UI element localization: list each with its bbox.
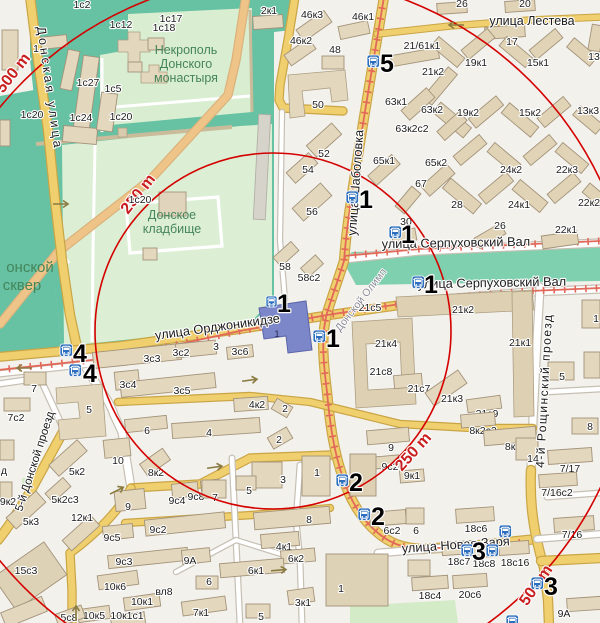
- svg-text:сквер: сквер: [3, 277, 42, 294]
- svg-text:улица Лестева: улица Лестева: [489, 14, 574, 28]
- svg-text:20: 20: [519, 0, 531, 10]
- svg-text:3с6: 3с6: [232, 346, 249, 358]
- svg-text:4: 4: [83, 360, 97, 388]
- svg-text:3с4: 3с4: [120, 379, 137, 391]
- svg-text:48: 48: [329, 44, 341, 56]
- svg-text:46к3: 46к3: [301, 9, 323, 21]
- svg-text:15с3: 15с3: [15, 565, 38, 577]
- svg-text:3с2: 3с2: [173, 347, 190, 359]
- svg-text:15к1: 15к1: [527, 57, 549, 69]
- svg-text:19к1: 19к1: [465, 57, 487, 69]
- svg-text:1с20: 1с20: [110, 111, 133, 123]
- svg-text:3: 3: [213, 341, 219, 353]
- svg-text:1с2: 1с2: [74, 0, 91, 11]
- svg-text:улица Серпуховский Вал: улица Серпуховский Вал: [418, 274, 567, 292]
- svg-text:24к1: 24к1: [508, 199, 530, 211]
- svg-text:46к2: 46к2: [290, 35, 312, 47]
- svg-text:10к6: 10к6: [104, 581, 126, 593]
- svg-text:6: 6: [413, 525, 419, 537]
- svg-text:1с5: 1с5: [105, 83, 122, 95]
- svg-text:Некрополь: Некрополь: [155, 43, 218, 57]
- svg-text:2: 2: [371, 503, 385, 531]
- svg-text:1: 1: [401, 221, 415, 249]
- svg-text:18с16: 18с16: [501, 557, 530, 569]
- svg-text:1с27: 1с27: [77, 77, 100, 89]
- svg-text:63к1: 63к1: [385, 96, 407, 108]
- svg-text:12к1: 12к1: [71, 512, 93, 524]
- svg-text:22к1: 22к1: [555, 224, 577, 236]
- svg-text:7с2: 7с2: [8, 412, 25, 424]
- svg-text:65к2: 65к2: [425, 157, 447, 169]
- svg-text:1с24: 1с24: [70, 112, 93, 124]
- svg-text:1: 1: [326, 325, 340, 353]
- svg-text:д: д: [1, 465, 7, 477]
- svg-text:онской: онской: [6, 259, 54, 276]
- svg-text:3с3: 3с3: [144, 353, 161, 365]
- svg-text:24к2: 24к2: [500, 164, 522, 176]
- svg-text:10: 10: [112, 455, 124, 467]
- svg-text:13к3: 13к3: [577, 105, 599, 117]
- svg-text:вл8: вл8: [155, 586, 172, 598]
- svg-text:21к3: 21к3: [441, 393, 463, 405]
- svg-text:52: 52: [318, 148, 330, 160]
- svg-text:63к2: 63к2: [421, 104, 443, 116]
- svg-text:6к1: 6к1: [248, 565, 264, 577]
- svg-text:13: 13: [588, 51, 600, 63]
- svg-text:7/16с2: 7/16с2: [541, 487, 573, 499]
- svg-text:1с12: 1с12: [110, 19, 133, 31]
- svg-text:21к2: 21к2: [422, 66, 444, 78]
- svg-text:58: 58: [279, 261, 291, 273]
- svg-text:4: 4: [206, 427, 212, 439]
- svg-text:9А: 9А: [558, 608, 571, 620]
- svg-text:6к2: 6к2: [288, 553, 304, 565]
- svg-text:7/16: 7/16: [562, 529, 583, 541]
- svg-text:22к2: 22к2: [578, 197, 600, 209]
- svg-text:6: 6: [206, 576, 212, 588]
- svg-text:2: 2: [282, 403, 288, 415]
- svg-text:21к2: 21к2: [452, 304, 474, 316]
- svg-text:65к1: 65к1: [373, 155, 395, 167]
- svg-text:2: 2: [349, 469, 363, 497]
- svg-text:21к4: 21к4: [375, 338, 397, 350]
- svg-text:5к3: 5к3: [23, 516, 39, 528]
- svg-text:15к2: 15к2: [519, 107, 541, 119]
- svg-text:1с20: 1с20: [21, 109, 44, 121]
- svg-text:1: 1: [314, 467, 320, 479]
- svg-text:63к2с2: 63к2с2: [395, 123, 428, 135]
- svg-text:10к5: 10к5: [83, 610, 105, 622]
- svg-text:26: 26: [494, 220, 506, 232]
- svg-text:9: 9: [125, 501, 131, 513]
- svg-text:1: 1: [424, 271, 438, 299]
- svg-text:18с4: 18с4: [419, 590, 442, 602]
- svg-text:монастыря: монастыря: [154, 71, 218, 85]
- svg-text:5: 5: [246, 485, 252, 497]
- svg-text:9А: 9А: [184, 555, 197, 567]
- svg-text:10к1: 10к1: [131, 596, 153, 608]
- svg-text:54: 54: [302, 164, 314, 176]
- svg-text:1с18: 1с18: [153, 22, 176, 34]
- svg-text:3к1: 3к1: [295, 597, 311, 609]
- svg-text:1с20: 1с20: [129, 194, 152, 206]
- svg-text:18с7: 18с7: [448, 556, 471, 568]
- svg-text:1: 1: [338, 583, 344, 595]
- svg-text:Донского: Донского: [160, 57, 213, 71]
- svg-text:9с4: 9с4: [169, 495, 186, 507]
- svg-text:21/61к1: 21/61к1: [404, 40, 441, 52]
- svg-text:кладбище: кладбище: [143, 222, 201, 236]
- svg-text:5: 5: [380, 50, 394, 78]
- svg-text:9с3: 9с3: [116, 556, 133, 568]
- svg-text:5: 5: [86, 404, 92, 416]
- svg-text:26: 26: [456, 0, 468, 10]
- svg-text:3с5: 3с5: [174, 385, 191, 397]
- svg-text:22к3: 22к3: [556, 164, 578, 176]
- svg-text:67: 67: [415, 178, 427, 190]
- svg-text:1: 1: [359, 186, 373, 214]
- svg-text:5к2с3: 5к2с3: [51, 494, 79, 506]
- svg-text:1: 1: [593, 313, 599, 325]
- svg-text:7: 7: [31, 383, 37, 395]
- svg-text:18с6: 18с6: [465, 523, 488, 535]
- svg-text:56: 56: [306, 206, 318, 218]
- svg-text:17: 17: [506, 36, 518, 48]
- svg-text:6: 6: [144, 425, 150, 437]
- svg-text:8: 8: [306, 514, 312, 526]
- svg-text:1: 1: [277, 290, 291, 318]
- svg-text:Донское: Донское: [148, 208, 196, 222]
- svg-text:2к1: 2к1: [261, 5, 277, 17]
- svg-text:8: 8: [587, 421, 593, 433]
- svg-text:10к1с1: 10к1с1: [110, 610, 143, 622]
- svg-text:9: 9: [388, 442, 394, 454]
- svg-text:58с2: 58с2: [298, 272, 321, 284]
- svg-text:5к2: 5к2: [69, 466, 85, 478]
- svg-text:7к1: 7к1: [193, 607, 209, 619]
- svg-text:46к1: 46к1: [352, 11, 374, 23]
- svg-text:19к2: 19к2: [457, 107, 479, 119]
- svg-text:20с6: 20с6: [459, 589, 482, 601]
- svg-text:28: 28: [451, 199, 463, 211]
- svg-text:1: 1: [274, 329, 279, 340]
- svg-text:9с5: 9с5: [104, 532, 121, 544]
- svg-text:3: 3: [280, 474, 286, 486]
- svg-text:3: 3: [472, 538, 486, 566]
- svg-text:2: 2: [276, 434, 282, 446]
- svg-text:9с2: 9с2: [150, 524, 167, 536]
- svg-text:5: 5: [559, 371, 565, 383]
- svg-text:6с2: 6с2: [384, 525, 401, 537]
- svg-text:50: 50: [312, 99, 324, 111]
- svg-text:8к2: 8к2: [148, 467, 164, 479]
- svg-text:21к1: 21к1: [509, 337, 531, 349]
- svg-text:21с8: 21с8: [370, 366, 393, 378]
- svg-text:4к2: 4к2: [249, 399, 265, 411]
- svg-text:3: 3: [544, 573, 558, 601]
- svg-text:5: 5: [258, 611, 264, 623]
